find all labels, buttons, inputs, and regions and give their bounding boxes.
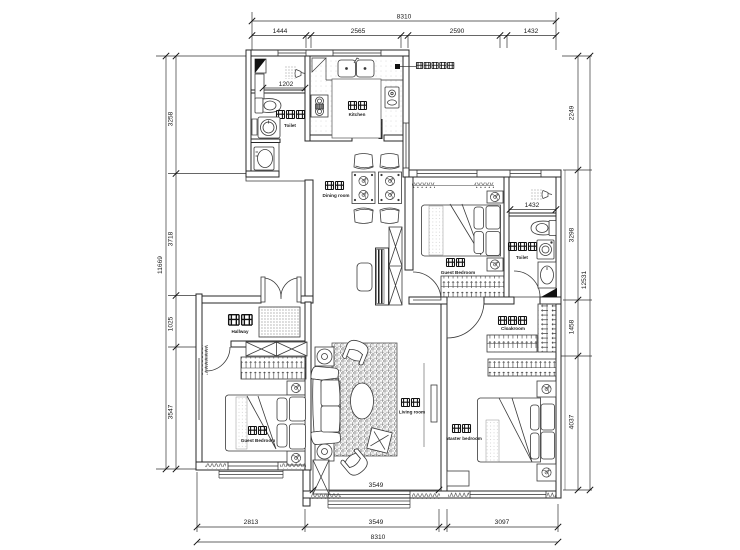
svg-text:Toilet: Toilet (284, 123, 296, 128)
svg-text:1444: 1444 (273, 28, 288, 35)
svg-text:3718: 3718 (168, 231, 175, 246)
svg-text:Living room: Living room (399, 410, 425, 415)
svg-text:Toilet: Toilet (516, 255, 528, 260)
svg-text:1458: 1458 (569, 319, 576, 334)
svg-text:4037: 4037 (569, 414, 576, 429)
svg-text:2590: 2590 (450, 28, 465, 35)
svg-text:Cloakroom: Cloakroom (501, 326, 525, 331)
svg-text:12531: 12531 (581, 271, 588, 290)
svg-text:Kitchen: Kitchen (349, 112, 366, 117)
svg-text:Dining room: Dining room (322, 193, 349, 198)
svg-text:3258: 3258 (168, 111, 175, 126)
svg-text:2565: 2565 (351, 28, 366, 35)
svg-text:3298: 3298 (569, 227, 576, 242)
svg-text:3549: 3549 (369, 519, 384, 526)
svg-text:2813: 2813 (244, 519, 259, 526)
svg-text:Guest Bedroom: Guest Bedroom (241, 438, 275, 443)
svg-text:1202: 1202 (279, 81, 294, 88)
svg-text:Hallway: Hallway (231, 329, 249, 334)
svg-text:1432: 1432 (524, 28, 539, 35)
svg-text:8310: 8310 (397, 14, 412, 21)
svg-text:1025: 1025 (168, 316, 175, 331)
svg-text:3547: 3547 (168, 404, 175, 419)
svg-text:Master bedroom: Master bedroom (446, 436, 482, 441)
svg-text:11669: 11669 (157, 256, 164, 274)
svg-text:2249: 2249 (569, 105, 576, 120)
svg-text:Guest Bedroom: Guest Bedroom (441, 270, 475, 275)
svg-text:3549: 3549 (369, 482, 384, 489)
svg-text:8310: 8310 (371, 534, 386, 541)
svg-text:1432: 1432 (525, 202, 540, 209)
svg-text:3097: 3097 (495, 519, 510, 526)
